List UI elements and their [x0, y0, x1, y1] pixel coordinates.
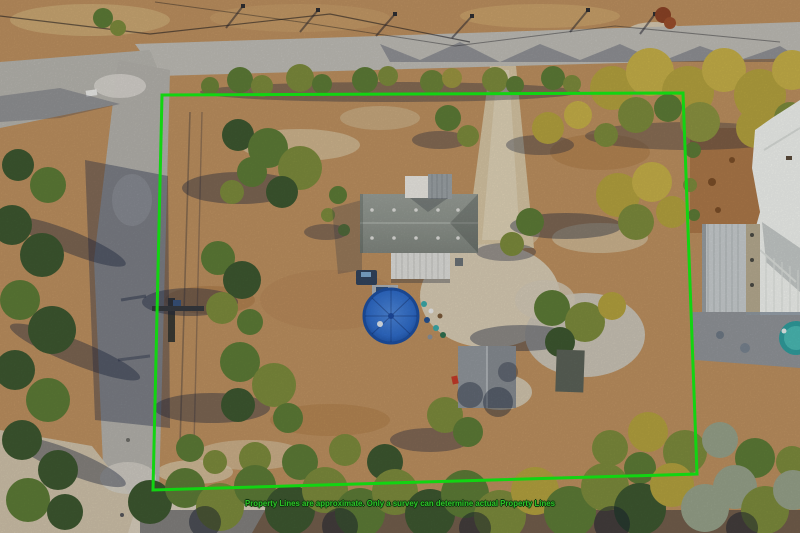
photo-grain — [0, 0, 800, 533]
aerial-photo: Property Lines are approximate. Only a s… — [0, 0, 800, 533]
aerial-scene — [0, 0, 800, 533]
